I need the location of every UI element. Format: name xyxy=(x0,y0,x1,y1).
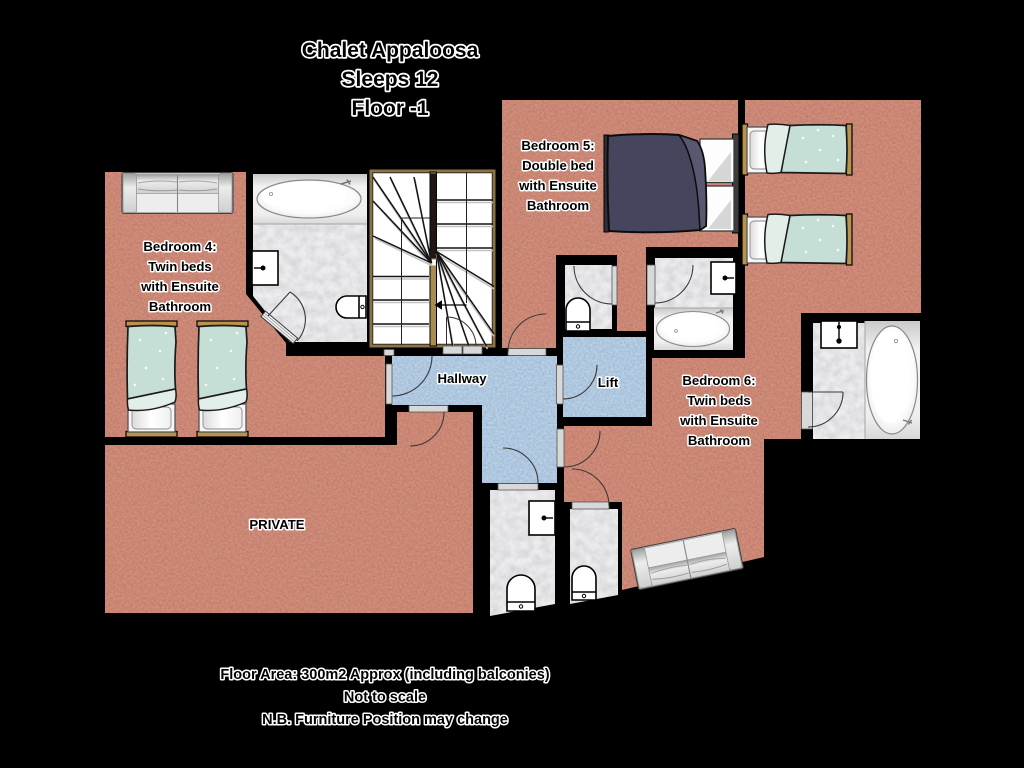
svg-text:Floor Area: 300m2 Approx (incl: Floor Area: 300m2 Approx (including balc… xyxy=(220,667,549,683)
svg-text:Bathroom: Bathroom xyxy=(149,299,211,314)
svg-text:Chalet Appaloosa: Chalet Appaloosa xyxy=(302,39,479,62)
svg-text:N.B. Furniture Position may ch: N.B. Furniture Position may change xyxy=(262,712,508,728)
svg-text:Bedroom 5:: Bedroom 5: xyxy=(521,138,594,153)
svg-text:Floor -1: Floor -1 xyxy=(352,97,429,120)
svg-text:Bathroom: Bathroom xyxy=(688,433,750,448)
svg-text:Bathroom: Bathroom xyxy=(527,198,589,213)
svg-text:with Ensuite: with Ensuite xyxy=(679,413,758,428)
svg-text:Hallway: Hallway xyxy=(437,371,487,386)
svg-text:PRIVATE: PRIVATE xyxy=(249,517,304,532)
svg-text:Double bed: Double bed xyxy=(522,158,594,173)
svg-text:Not to scale: Not to scale xyxy=(344,690,426,706)
svg-text:with Ensuite: with Ensuite xyxy=(518,178,597,193)
svg-text:Bedroom 6:: Bedroom 6: xyxy=(682,373,755,388)
svg-text:Twin beds: Twin beds xyxy=(148,259,212,274)
svg-text:Bedroom 4:: Bedroom 4: xyxy=(143,239,216,254)
svg-text:Sleeps 12: Sleeps 12 xyxy=(342,68,439,91)
svg-text:with Ensuite: with Ensuite xyxy=(140,279,219,294)
svg-text:Lift: Lift xyxy=(598,375,619,390)
svg-text:Twin beds: Twin beds xyxy=(687,393,751,408)
